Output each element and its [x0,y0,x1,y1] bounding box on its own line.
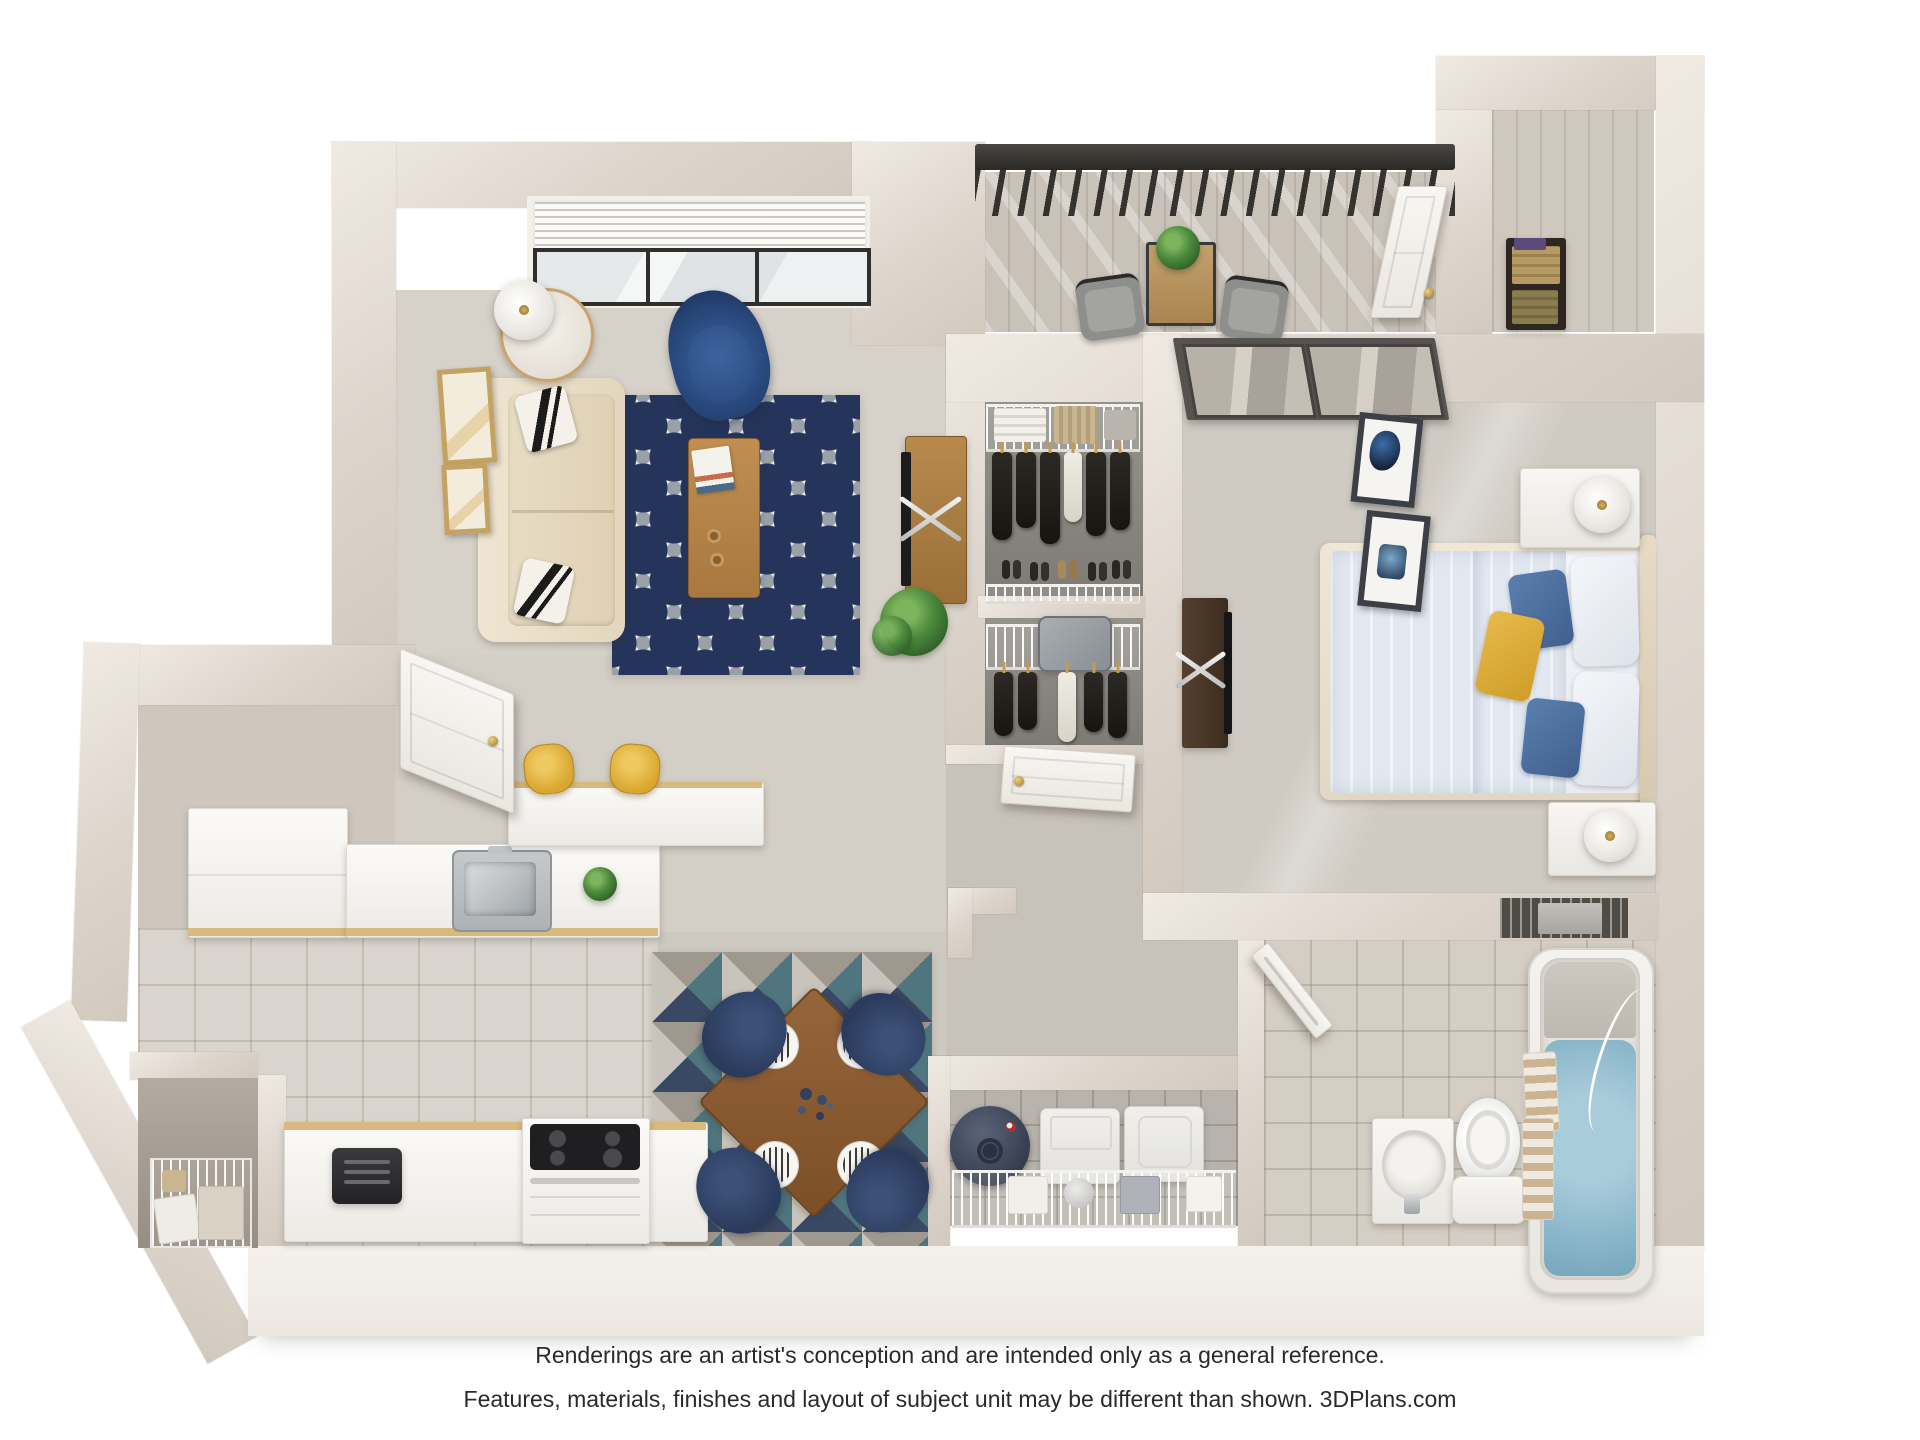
patio-chair-right [1218,274,1290,344]
laundry-basket [1064,1178,1094,1208]
laundry-box [1008,1176,1048,1214]
wall-bathroom-west [1238,938,1264,1250]
wall-living-ne-corner [852,142,985,345]
pillow-blue [1520,697,1586,779]
bedroom-wall-art [1357,510,1431,612]
glassware-cluster [800,1088,812,1100]
wall-east-exterior [1656,56,1704,1250]
disclaimer-line2: Features, materials, finishes and layout… [0,1384,1920,1414]
sink-faucet [1404,1194,1420,1214]
wall-laundry-west [928,1056,950,1248]
towel-stack [1522,1118,1554,1220]
closet-bin [1104,410,1136,440]
living-plant-leaf [872,616,912,656]
cabinet-wood-edge [188,928,346,936]
cabinet-seam [188,874,346,876]
kitchen-sink-basin [464,862,536,916]
oven-handle [530,1178,640,1184]
magazines [691,446,735,495]
dryer-lid [1138,1116,1192,1168]
patio-chair-left [1074,272,1146,342]
wall-south-exterior [248,1246,1704,1336]
toilet-bowl [1456,1098,1520,1186]
bedroom-tv [1224,612,1232,734]
window-blinds [533,200,867,252]
closet-towels [994,408,1046,442]
washer-lid [1050,1116,1112,1150]
art-abstract [1376,543,1407,580]
wall-art-tan [437,366,498,466]
sliding-glass-door [1173,338,1449,420]
oven-drawer-lines [530,1196,640,1198]
storage-box-purple [1514,238,1546,250]
mug [707,529,721,543]
bar-stool [608,742,662,796]
balcony-railing-bar [975,144,1455,170]
wall-hall-stub-b [948,888,972,958]
wall-pantry-north [130,1052,258,1080]
wall-pantry-stub [258,1075,286,1248]
floor-lamp [494,280,554,340]
disclaimer: Renderings are an artist's conception an… [0,1340,1920,1428]
entry-door-knob [488,736,498,746]
pantry-box [153,1193,201,1244]
bedroom-door-knob [1014,776,1024,786]
vanity-sink [1382,1130,1446,1200]
balcony-railing-slats [975,168,1455,216]
kitchen-faucet [488,846,512,854]
headboard [1640,535,1656,807]
wall-living-west [332,142,396,658]
toaster-slots [344,1160,390,1164]
laundry-box-gray [1120,1176,1160,1214]
wall-bedroom-west [1143,334,1182,902]
storage-box-olive [1512,290,1558,324]
hanging-garment [1084,672,1103,732]
shoe-pair [1112,560,1120,579]
disclaimer-line1: Renderings are an artist's conception an… [0,1340,1920,1370]
shoe-pair [1088,562,1096,581]
hanging-garment-white [1058,672,1076,742]
niche-box [1538,903,1602,934]
balcony-plant [1156,226,1200,270]
kitchen-plant [583,867,617,901]
laundry-box [1186,1176,1222,1212]
closet-a-shoe-shelf [986,584,1140,604]
shoe-pair [1002,560,1010,579]
hanging-garment [994,672,1013,736]
hanging-garment-white [1064,452,1082,522]
toaster [332,1148,402,1204]
tv [901,452,911,586]
storage-box-tan [1512,246,1560,284]
wall-kitchen-west [71,642,140,1022]
hanging-garment [1108,672,1127,738]
upper-cabinets [188,808,348,938]
pantry-box [198,1186,244,1240]
hanging-garment [992,452,1012,540]
hanging-garment [1086,452,1106,536]
wall-laundry-north [928,1056,1246,1090]
hanging-garment [1110,452,1130,530]
hanging-garment [1018,672,1037,730]
nightstand-lamp [1584,810,1636,862]
pantry-jar [162,1170,186,1192]
suitcase [1038,616,1112,672]
art-abstract [1368,429,1402,472]
toilet-tank [1452,1176,1526,1224]
hanging-garment [1016,452,1036,528]
wall-kitchen-north [125,645,415,705]
pillow-white [1570,555,1640,667]
nightstand-lamp [1574,477,1630,533]
floorplan-render: Renderings are an artist's conception an… [0,0,1920,1440]
mug [710,553,724,567]
shoe-pair [1030,562,1038,581]
storage-door-knob [1424,288,1434,298]
wall-art-tan [441,463,491,535]
sliding-door-pane [1306,344,1445,418]
closet-basket [1054,406,1098,444]
range-cooktop [530,1124,640,1170]
bedroom-wall-art [1350,412,1423,508]
sliding-door-pane [1182,344,1317,418]
shoe-pair-tan [1058,560,1066,579]
hanging-garment [1040,452,1060,544]
